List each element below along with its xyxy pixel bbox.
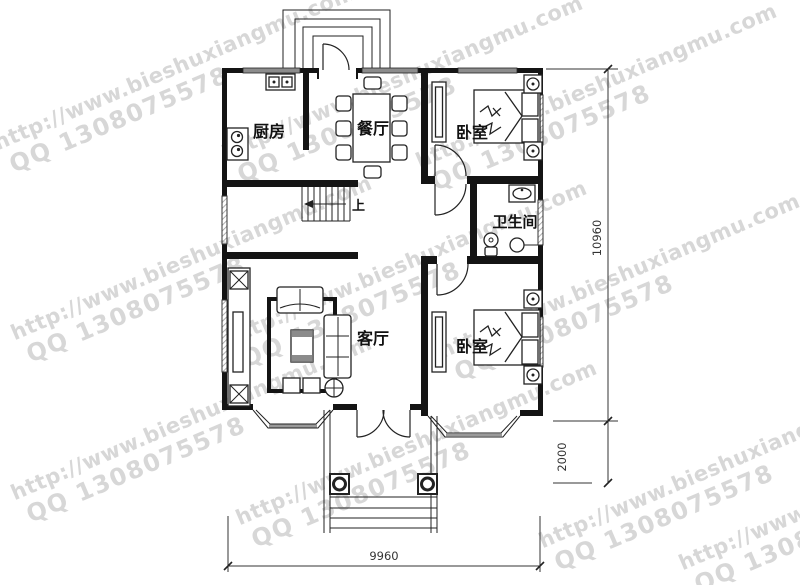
dining-room: 餐厅 [336, 77, 407, 178]
floor-plan-drawing: 厨房 餐厅 [0, 0, 800, 585]
chair [364, 166, 381, 178]
shower-drain-icon [510, 238, 538, 252]
bay-window-living [253, 410, 333, 428]
window-bedroom1-top [458, 68, 517, 73]
bay-window-bedroom2 [428, 416, 520, 437]
stove-icon [227, 128, 248, 160]
chair [392, 96, 407, 111]
window-dining-top [362, 68, 418, 73]
bathroom-label: 卫生间 [492, 213, 537, 231]
stairs-up-label: 上 [352, 199, 365, 214]
bedroom2-door [437, 264, 468, 295]
dining-label: 餐厅 [356, 119, 389, 138]
kitchen-label: 厨房 [253, 122, 285, 141]
floor-plan-screenshot: http://www.bieshuxiangmu.comQQ 130807557… [0, 0, 800, 585]
kitchen-sink-icon [266, 74, 295, 90]
nightstand-icon [524, 75, 542, 93]
chair [392, 121, 407, 136]
chair [336, 96, 351, 111]
back-door [323, 44, 349, 70]
chair [392, 145, 407, 160]
living-room: 客厅 [228, 268, 389, 406]
entry-porch [324, 410, 437, 533]
chair [364, 77, 381, 89]
kitchen: 厨房 [227, 74, 295, 160]
bathroom-door [435, 184, 466, 215]
sofa-icon [277, 287, 351, 378]
window-kitchen-top [243, 68, 300, 73]
window-living-left [222, 300, 227, 372]
tv-cabinet-icon [228, 268, 250, 406]
side-table-icon [325, 379, 343, 397]
chair [336, 121, 351, 136]
dim-overall-height: 10960 [590, 220, 604, 257]
dimension-bottom: 9960 [224, 516, 544, 572]
bedroom-top-label: 卧室 [456, 123, 488, 142]
bedroom-top: 卧室 [432, 75, 542, 160]
toilet-icon [484, 233, 498, 256]
bedroom-bottom: 卧室 [432, 290, 542, 384]
porch-column-icon [330, 474, 349, 494]
entry-double-door [357, 410, 410, 437]
stairs-up-arrow-icon [304, 200, 346, 208]
window-bathroom-right [538, 200, 543, 245]
stool [303, 378, 320, 393]
coffee-table-icon [291, 330, 313, 362]
dim-overall-width: 9960 [369, 549, 398, 563]
nightstand-icon [524, 290, 542, 308]
chair [336, 145, 351, 160]
dim-porch-depth: 2000 [555, 442, 569, 471]
window-hall-left [222, 196, 227, 244]
wardrobe-icon [432, 312, 446, 372]
bathroom-sink-icon [509, 185, 535, 202]
entry-steps [330, 497, 437, 528]
living-label: 客厅 [357, 329, 389, 348]
nightstand-icon [524, 142, 542, 160]
bedroom-bottom-label: 卧室 [456, 337, 488, 356]
porch-column-icon [418, 474, 437, 494]
stool [283, 378, 300, 393]
staircase: 上 [302, 187, 365, 221]
dimension-right: 10960 2000 [546, 65, 618, 487]
wardrobe-icon [432, 82, 446, 142]
back-stoop-steps [283, 10, 390, 68]
bedroom1-door [435, 145, 466, 176]
nightstand-icon [524, 366, 542, 384]
bathroom: 卫生间 [484, 185, 538, 256]
